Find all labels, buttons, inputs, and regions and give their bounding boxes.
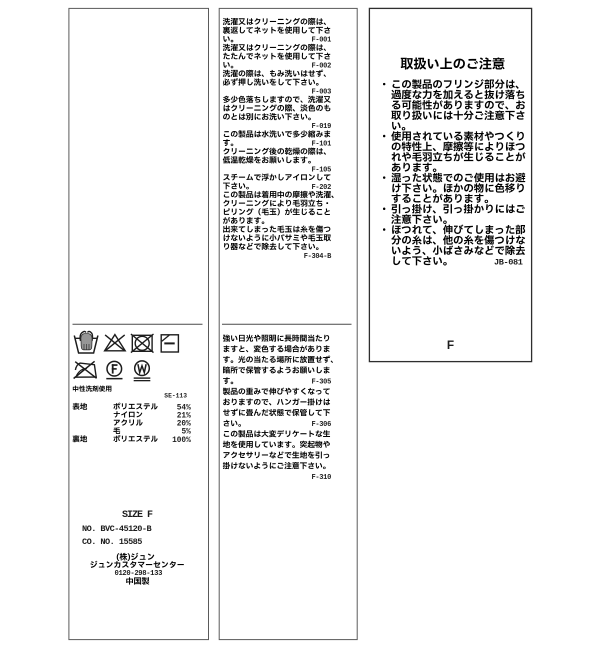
- svg-text:F-306: F-306: [311, 421, 331, 429]
- svg-text:F-101: F-101: [311, 141, 331, 149]
- svg-text:SE-113: SE-113: [164, 392, 187, 399]
- svg-text:SIZE F: SIZE F: [122, 510, 153, 521]
- svg-text:F: F: [447, 338, 454, 352]
- svg-text:54%: 54%: [177, 404, 191, 412]
- svg-text:CO. NO. 15585: CO. NO. 15585: [82, 537, 142, 547]
- svg-text:F-105: F-105: [311, 166, 331, 174]
- svg-text:0120-298-133: 0120-298-133: [115, 570, 163, 578]
- svg-text:NO. BVC-45120-B: NO. BVC-45120-B: [82, 524, 151, 534]
- svg-text:21%: 21%: [177, 413, 191, 421]
- svg-text:F-310: F-310: [311, 474, 331, 482]
- svg-text:5%: 5%: [181, 429, 191, 437]
- svg-text:20%: 20%: [177, 421, 191, 429]
- svg-text:F-305: F-305: [311, 379, 331, 387]
- svg-text:F-003: F-003: [311, 89, 331, 97]
- svg-text:100%: 100%: [172, 437, 191, 445]
- svg-text:F-002: F-002: [311, 63, 331, 71]
- svg-text:F-019: F-019: [311, 123, 331, 131]
- svg-text:F-304-B: F-304-B: [304, 253, 332, 261]
- svg-text:F-202: F-202: [311, 184, 331, 192]
- svg-text:JB-081: JB-081: [494, 257, 523, 267]
- svg-text:F-001: F-001: [311, 37, 331, 45]
